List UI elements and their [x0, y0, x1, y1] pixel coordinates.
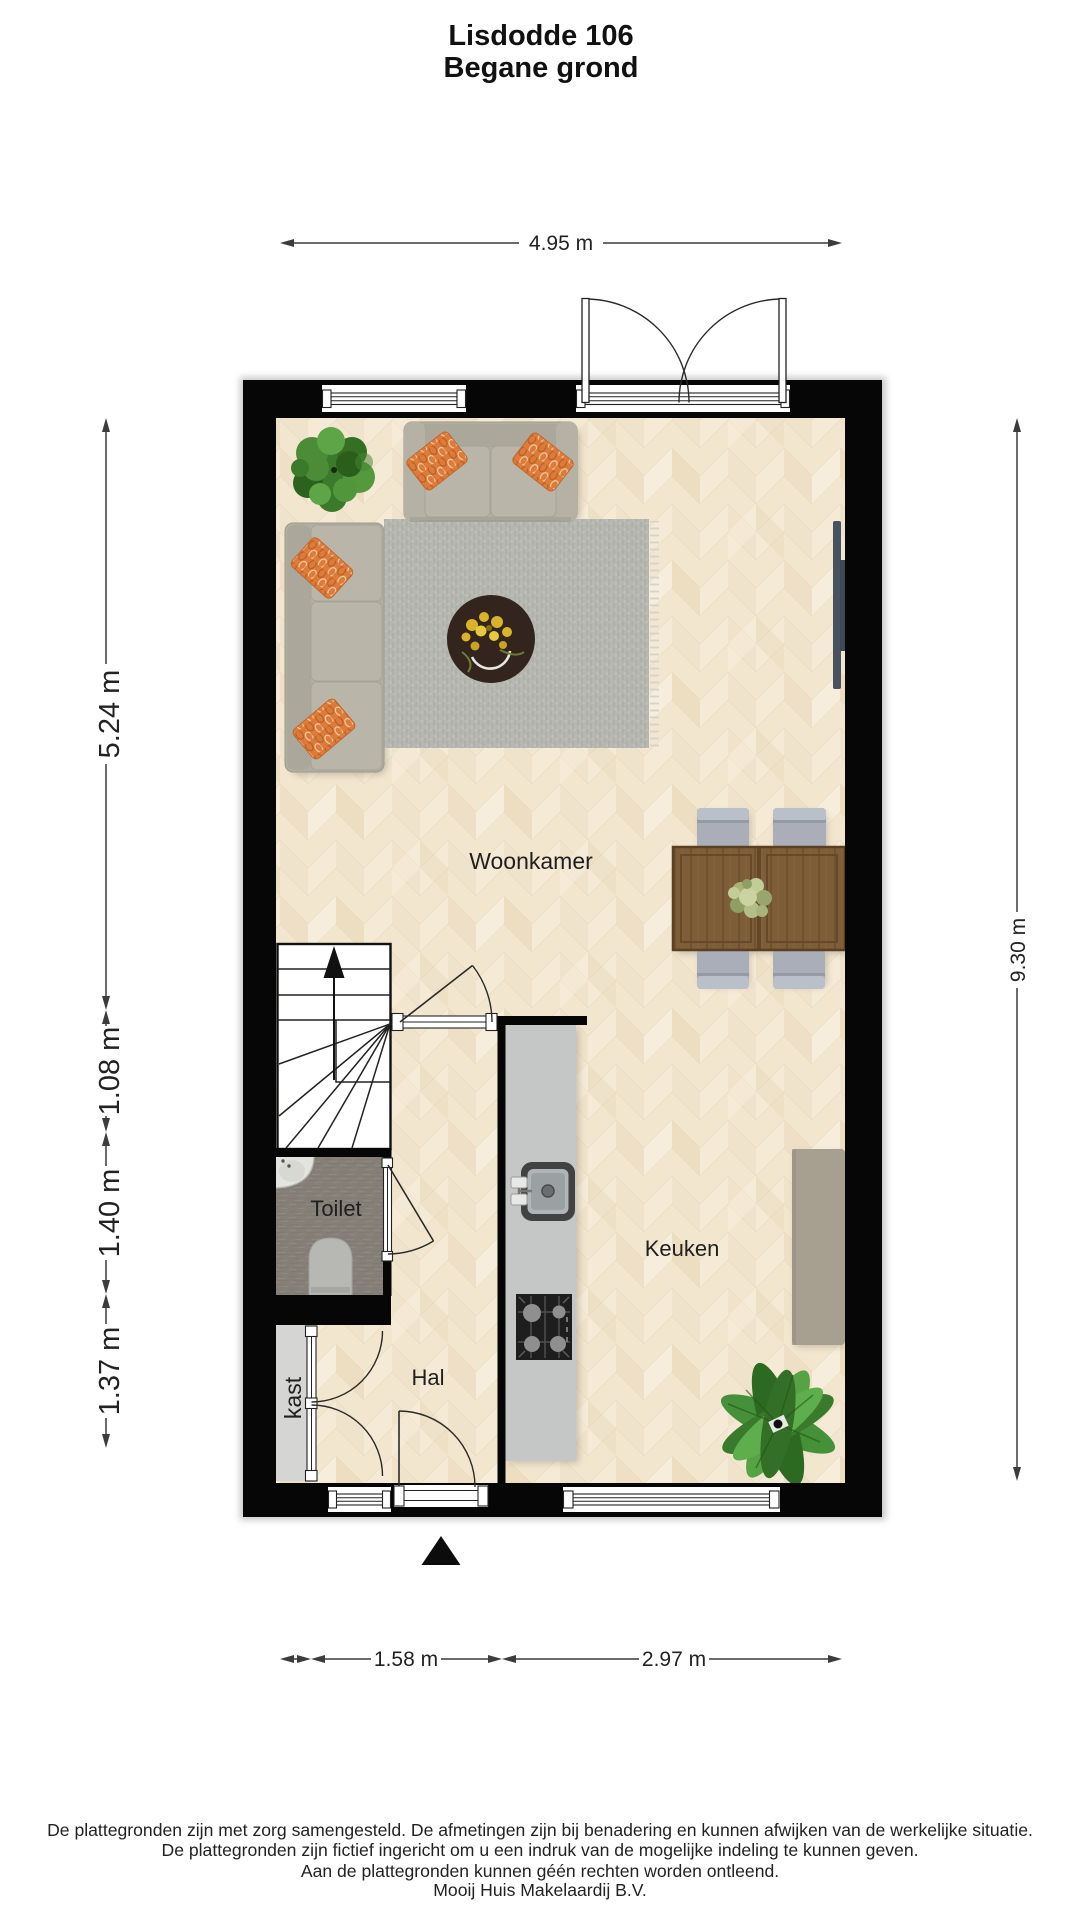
- svg-text:1.08 m: 1.08 m: [94, 1027, 126, 1116]
- svg-text:Lisdodde 106: Lisdodde 106: [448, 20, 633, 52]
- svg-text:9.30 m: 9.30 m: [1007, 918, 1030, 982]
- svg-text:Woonkamer: Woonkamer: [469, 848, 593, 874]
- svg-text:4.95 m: 4.95 m: [529, 232, 593, 255]
- svg-text:kast: kast: [280, 1376, 306, 1419]
- svg-text:5.24 m: 5.24 m: [94, 670, 126, 759]
- svg-text:2.97 m: 2.97 m: [642, 1648, 706, 1671]
- svg-text:1.40 m: 1.40 m: [94, 1169, 126, 1258]
- svg-text:De plattegronden zijn fictief: De plattegronden zijn fictief ingericht …: [161, 1840, 918, 1860]
- svg-text:Aan de plattegronden kunnen gé: Aan de plattegronden kunnen géén rechten…: [301, 1861, 779, 1881]
- svg-text:Toilet: Toilet: [310, 1196, 361, 1221]
- svg-text:1.37 m: 1.37 m: [94, 1327, 126, 1416]
- svg-text:Keuken: Keuken: [645, 1236, 720, 1261]
- svg-text:1.58 m: 1.58 m: [374, 1648, 438, 1671]
- svg-text:Hal: Hal: [411, 1365, 444, 1390]
- svg-text:Begane grond: Begane grond: [444, 52, 639, 84]
- svg-text:De plattegronden zijn met zorg: De plattegronden zijn met zorg samengest…: [47, 1820, 1033, 1840]
- svg-text:Mooij Huis Makelaardij B.V.: Mooij Huis Makelaardij B.V.: [433, 1880, 647, 1900]
